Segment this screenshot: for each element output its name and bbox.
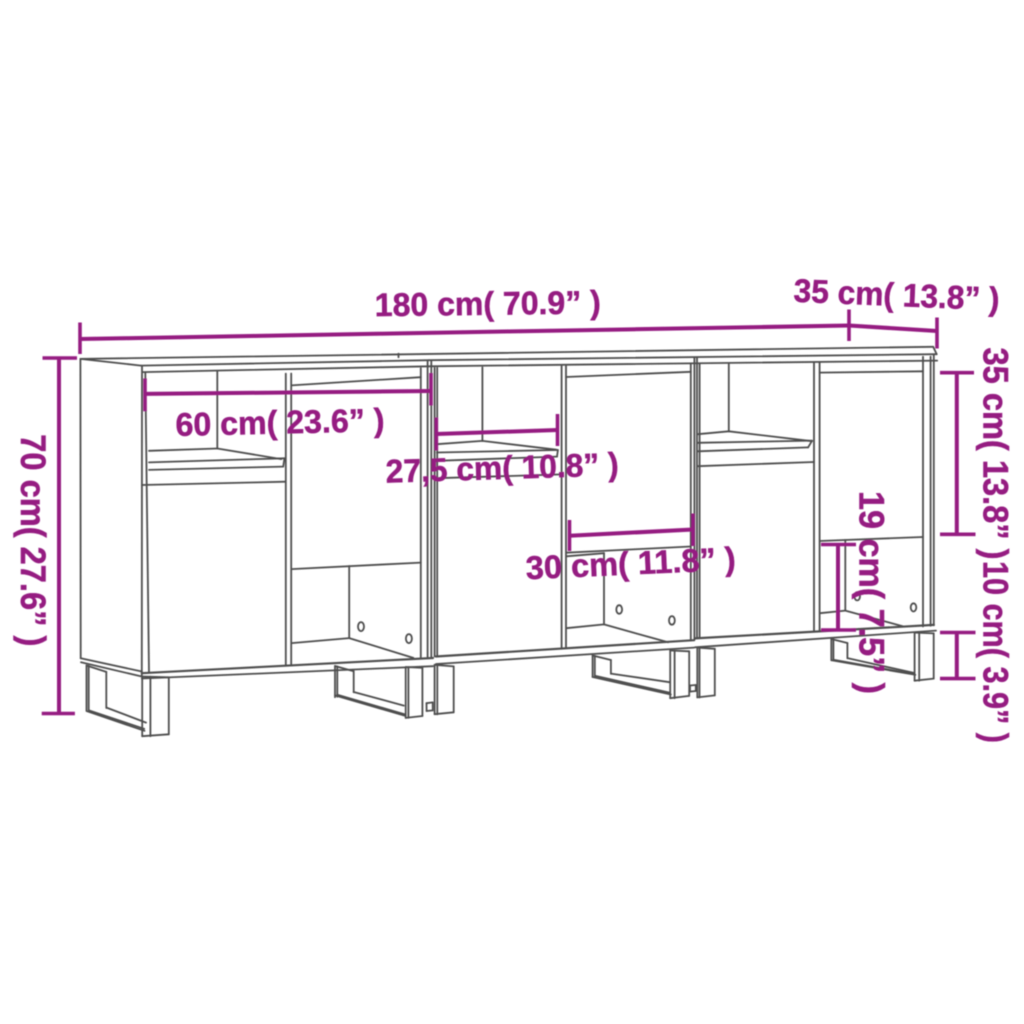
svg-text:180 cm( 70.9” ): 180 cm( 70.9” )	[375, 283, 601, 323]
svg-text:10 cm( 3.9” ): 10 cm( 3.9” )	[975, 561, 1015, 743]
svg-text:27,5 cm( 10.8” ): 27,5 cm( 10.8” )	[385, 445, 619, 489]
svg-text:60 cm( 23.6” ): 60 cm( 23.6” )	[175, 401, 385, 443]
svg-text:19 cm( 7.5” ): 19 cm( 7.5” )	[851, 491, 891, 694]
svg-text:35 cm( 13.8” ): 35 cm( 13.8” )	[975, 348, 1015, 560]
svg-text:70 cm( 27.6” ): 70 cm( 27.6” )	[13, 434, 53, 646]
